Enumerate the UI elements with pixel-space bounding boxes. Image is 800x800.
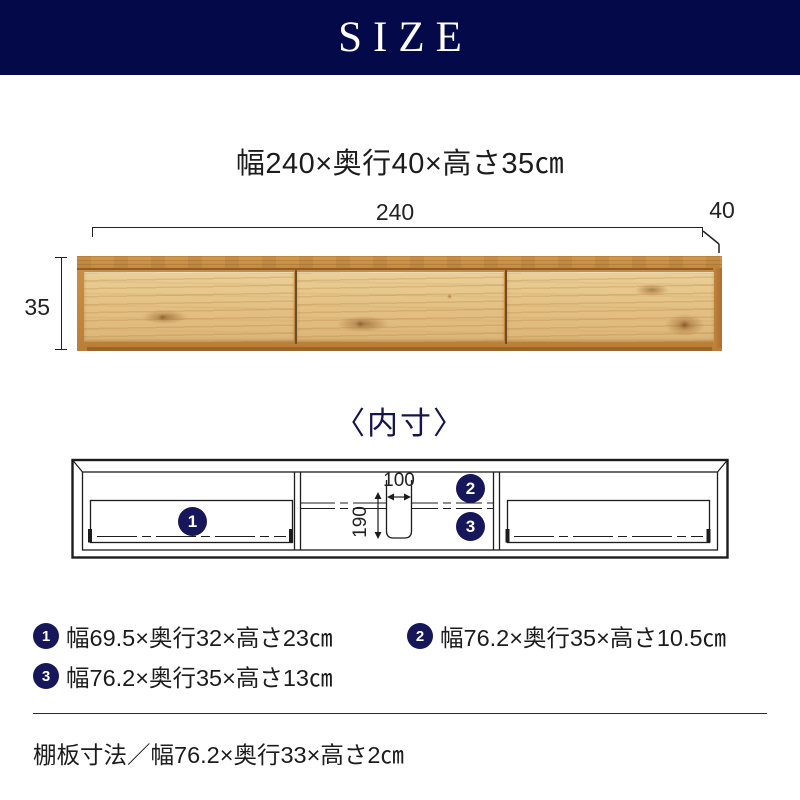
height-dimension-tick-top	[55, 257, 67, 258]
width-dimension-line	[92, 227, 703, 228]
shelf-dimensions-note: 棚板寸法／幅76.2×奥行33×高さ2㎝	[33, 736, 773, 770]
tv-board-illustration	[77, 256, 722, 351]
drawer-front-right	[507, 272, 714, 342]
depth-dimension-label: 40	[701, 198, 743, 222]
legend-item-2: 2 幅76.2×奥行35×高さ10.5㎝	[407, 619, 726, 653]
drawer-gap-right	[505, 270, 508, 344]
legend-text-1: 幅69.5×奥行32×高さ23㎝	[66, 619, 332, 653]
legend-item-1: 1 幅69.5×奥行32×高さ23㎝	[33, 619, 332, 653]
drawer-gap-left	[295, 270, 298, 344]
overall-dimensions-text: 幅240×奥行40×高さ35㎝	[0, 140, 800, 182]
cabinet-right-edge	[713, 268, 722, 348]
drawer-front-left	[84, 272, 294, 342]
height-dimension-line	[61, 257, 62, 349]
height-dimension-label: 35	[12, 295, 50, 319]
header-bar: SIZE	[0, 0, 800, 75]
inner-dimensions-title: 〈内寸〉	[0, 398, 800, 443]
page-title: SIZE	[327, 13, 473, 62]
legend-marker-3: 3	[33, 663, 59, 689]
diagram-marker-1: 1	[178, 507, 207, 536]
opening-width-label: 100	[381, 470, 417, 492]
opening-height-label: 190	[350, 504, 372, 540]
drawer-front-center	[297, 272, 504, 342]
width-dimension-tick-left	[92, 227, 93, 237]
diagram-marker-2: 2	[456, 474, 485, 503]
cabinet-base-shadow	[87, 347, 712, 351]
legend-text-3: 幅76.2×奥行35×高さ13㎝	[66, 659, 332, 693]
legend-item-3: 3 幅76.2×奥行35×高さ13㎝	[33, 659, 332, 693]
depth-dimension-line	[695, 225, 731, 259]
width-dimension-label: 240	[345, 200, 445, 224]
legend-marker-1: 1	[33, 623, 59, 649]
cabinet-top-surface	[77, 256, 722, 270]
footer-divider	[33, 713, 767, 714]
legend-text-2: 幅76.2×奥行35×高さ10.5㎝	[440, 619, 726, 653]
legend-marker-2: 2	[407, 623, 433, 649]
inner-dimensions-diagram	[60, 450, 740, 565]
height-dimension-tick-bottom	[55, 349, 67, 350]
diagram-marker-3: 3	[456, 512, 485, 541]
